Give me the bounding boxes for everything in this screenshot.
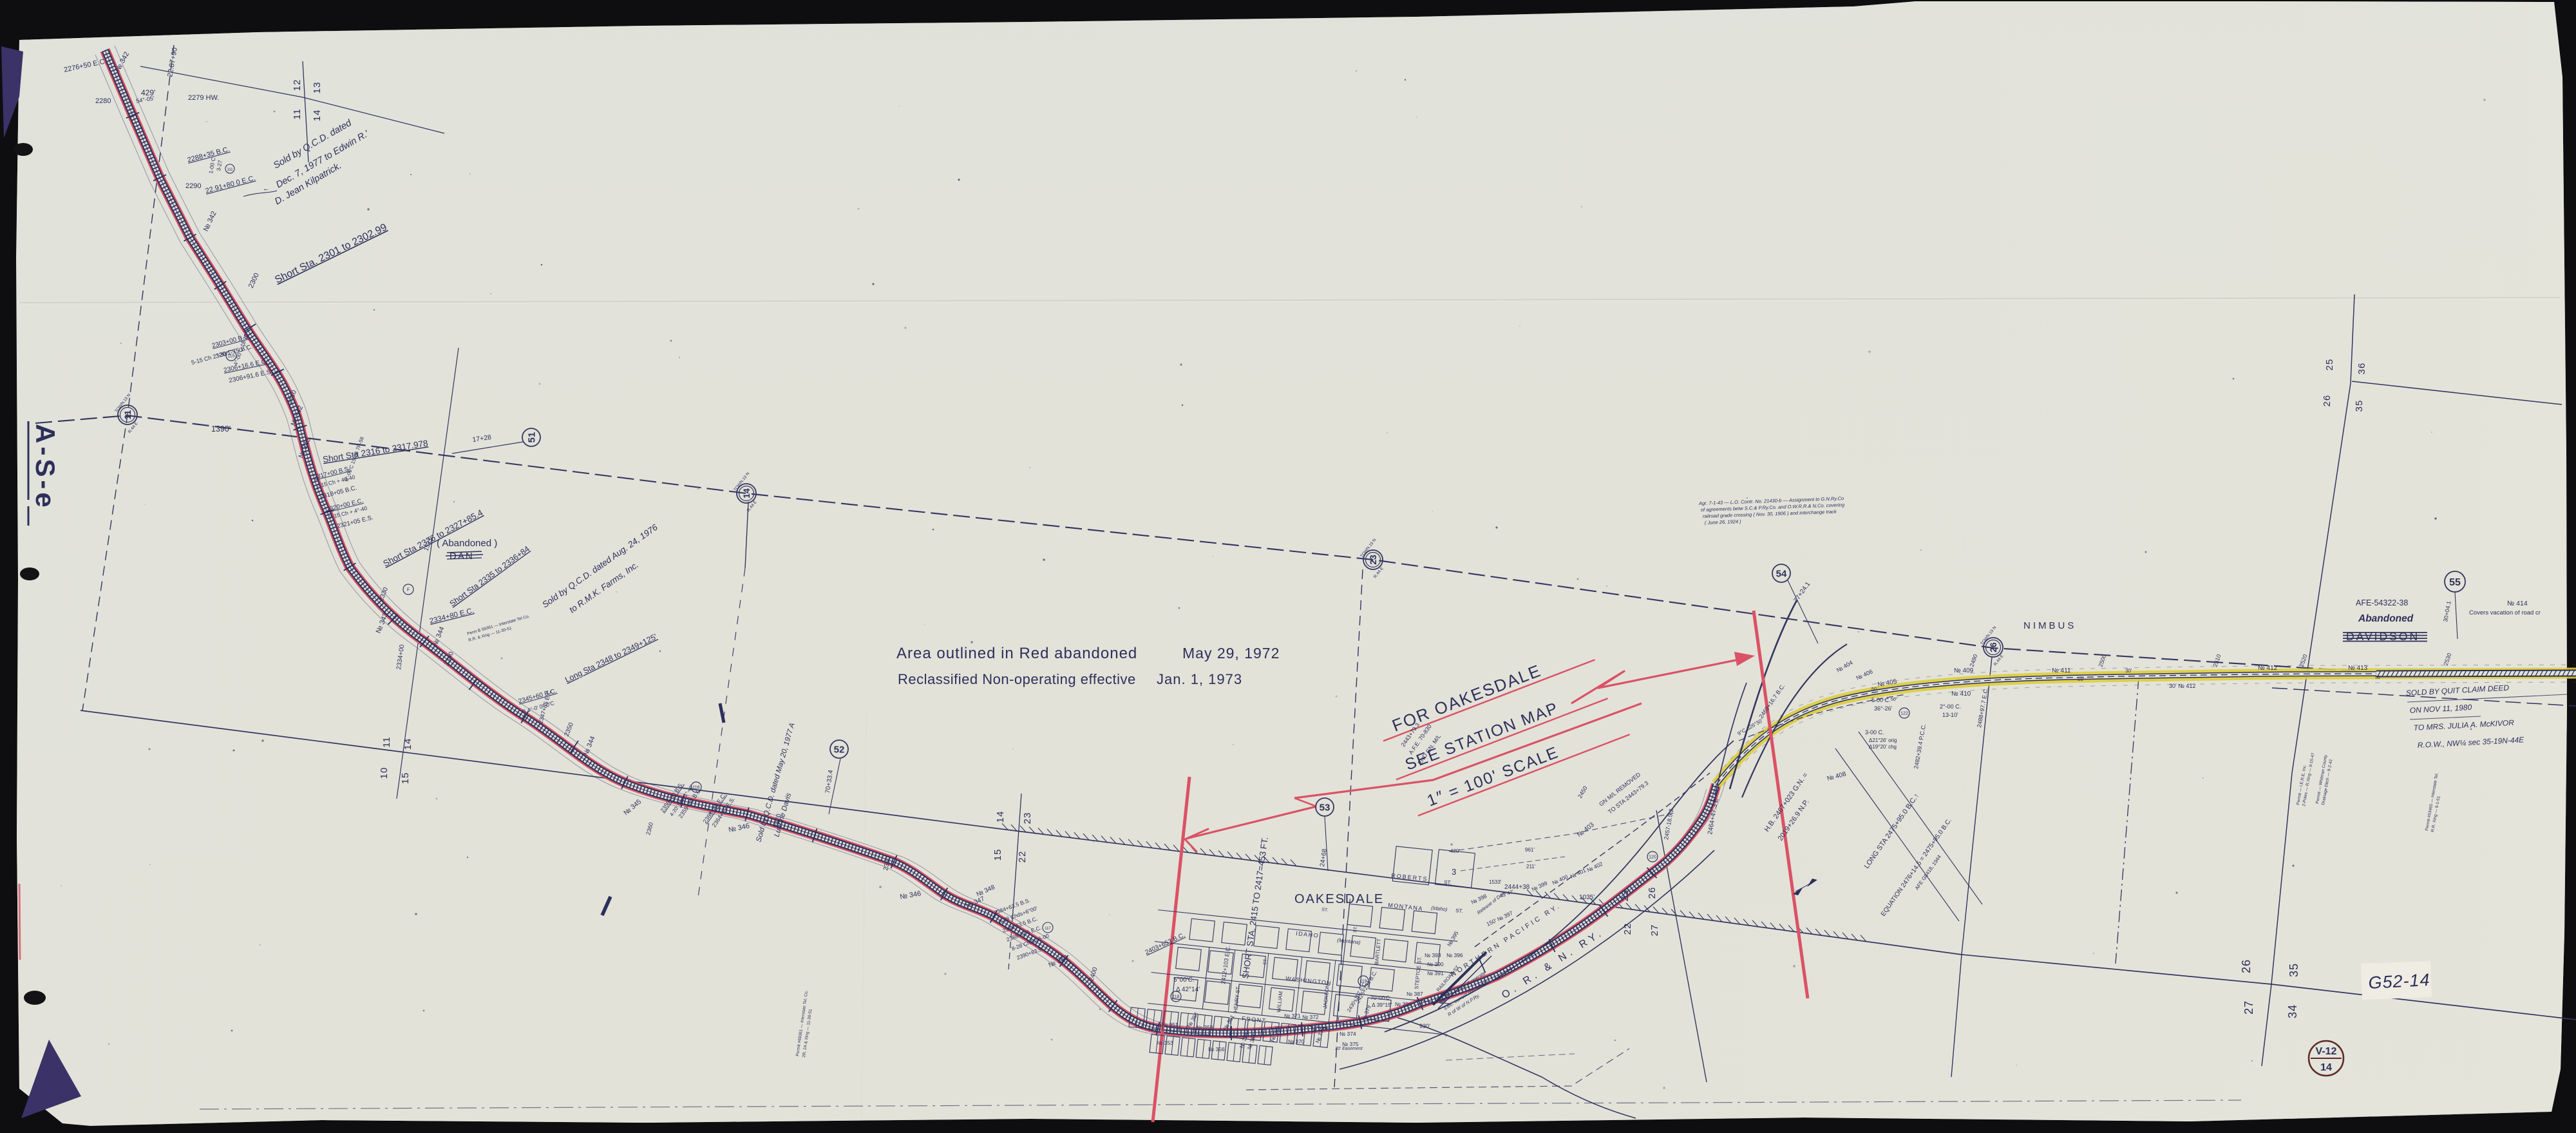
svg-text:55: 55 — [2449, 577, 2461, 588]
svg-text:2280: 2280 — [95, 97, 111, 105]
svg-text:Reclassified Non-operating eff: Reclassified Non-operating effective — [898, 671, 1136, 687]
svg-text:№ 358: № 358 — [1197, 1024, 1213, 1031]
svg-text:35: 35 — [2287, 963, 2300, 977]
svg-text:ST.: ST. — [1321, 908, 1329, 913]
svg-text:№ 353: № 353 — [1157, 1040, 1173, 1046]
svg-text:Area outlined in Red abandoned: Area outlined in Red abandoned — [896, 645, 1137, 662]
svg-text:36: 36 — [2356, 363, 2367, 375]
svg-text:Abandoned: Abandoned — [2358, 613, 2414, 624]
svg-text:122: 122 — [1900, 712, 1908, 716]
svg-text:26: 26 — [2240, 959, 2253, 973]
svg-text:30' № 412: 30' № 412 — [2169, 683, 2195, 689]
svg-text:1390': 1390' — [211, 424, 231, 433]
svg-text:52: 52 — [834, 744, 845, 755]
svg-text:23: 23 — [1620, 890, 1631, 902]
svg-text:26: 26 — [1647, 887, 1658, 899]
svg-text:←: ← — [263, 185, 270, 193]
svg-text:F: F — [407, 588, 410, 593]
svg-text:Δ21°26' orig: Δ21°26' orig — [1869, 738, 1897, 743]
svg-text:№ 396: № 396 — [1446, 952, 1463, 958]
svg-text:53: 53 — [1320, 802, 1331, 813]
svg-text:№ 393: № 393 — [1425, 952, 1441, 958]
svg-text:№ 351: № 351 — [1162, 1022, 1179, 1028]
svg-text:№ 356: № 356 — [1208, 1046, 1225, 1052]
svg-text:№ 411: № 411 — [2052, 667, 2071, 674]
svg-text:50': 50' — [2375, 676, 2381, 680]
svg-text:№ 387: № 387 — [1406, 991, 1423, 997]
svg-text:15: 15 — [400, 772, 411, 785]
svg-text:22: 22 — [1622, 923, 1633, 935]
svg-text:111: 111 — [227, 168, 233, 172]
svg-text:№ 370: № 370 — [1288, 1038, 1305, 1045]
svg-text:211': 211' — [1526, 864, 1536, 870]
svg-text:3: 3 — [1452, 867, 1456, 877]
svg-text:№ 374: № 374 — [1340, 1031, 1356, 1037]
svg-text:№ 372: № 372 — [1302, 1014, 1319, 1020]
svg-text:13: 13 — [312, 82, 323, 94]
svg-text:30' Easement: 30' Easement — [1335, 1047, 1363, 1051]
svg-text:36°-26': 36°-26' — [1874, 705, 1893, 712]
svg-text:35: 35 — [2354, 400, 2365, 412]
svg-text:AFE-54322-38: AFE-54322-38 — [2356, 598, 2408, 607]
svg-text:№ 409: № 409 — [1954, 667, 1974, 674]
svg-text:3-00 C.: 3-00 C. — [1865, 729, 1884, 736]
svg-text:13-10': 13-10' — [1942, 712, 1958, 718]
svg-text:ST.: ST. — [1263, 958, 1268, 965]
svg-text:A-S-e: A-S-e — [30, 424, 61, 511]
svg-text:Covers vacation of road cr: Covers vacation of road cr — [2469, 609, 2541, 616]
svg-text:14: 14 — [2320, 1062, 2332, 1073]
svg-text:ST.: ST. — [1353, 926, 1358, 933]
svg-text:ST.: ST. — [1455, 908, 1463, 914]
svg-text:117: 117 — [1045, 927, 1051, 931]
svg-text:23: 23 — [1022, 812, 1033, 824]
svg-text:50': 50' — [1891, 698, 1897, 702]
svg-text:G52-14: G52-14 — [2368, 970, 2431, 993]
svg-text:50': 50' — [2078, 676, 2085, 682]
svg-text:V-12: V-12 — [2316, 1046, 2337, 1057]
svg-text:120: 120 — [1649, 855, 1656, 860]
svg-text:( Abandoned ): ( Abandoned ) — [437, 538, 497, 549]
svg-text:11: 11 — [381, 736, 392, 748]
svg-text:1035': 1035' — [1579, 894, 1595, 901]
svg-text:27: 27 — [2242, 1000, 2255, 1014]
svg-text:420': 420' — [1450, 848, 1460, 854]
svg-text:27: 27 — [1649, 924, 1660, 937]
svg-text:15: 15 — [992, 849, 1003, 861]
svg-text:№ 412: № 412 — [2258, 665, 2278, 672]
svg-text:2°-00 C.: 2°-00 C. — [1940, 703, 1961, 710]
svg-text:№ 386: № 386 — [1395, 1001, 1412, 1007]
svg-text:25: 25 — [2324, 359, 2335, 371]
svg-text:№ 413: № 413 — [2348, 665, 2368, 672]
svg-text:Δ 39°15': Δ 39°15' — [1372, 1002, 1392, 1008]
svg-text:Δ19°20' chg: Δ19°20' chg — [1869, 744, 1897, 750]
svg-text:ST.: ST. — [1444, 879, 1452, 886]
svg-text:23: 23 — [1368, 555, 1378, 565]
svg-text:№ 391: № 391 — [1427, 970, 1444, 976]
svg-text:2290: 2290 — [185, 182, 201, 190]
svg-text:11: 11 — [122, 410, 133, 419]
svg-text:№ 414: № 414 — [2507, 600, 2528, 607]
svg-text:11: 11 — [292, 108, 303, 120]
svg-text:26: 26 — [2322, 395, 2333, 407]
svg-text:12: 12 — [292, 79, 303, 91]
svg-text:NIMBUS: NIMBUS — [2023, 620, 2076, 631]
svg-text:14: 14 — [995, 811, 1006, 823]
svg-text:54: 54 — [1776, 568, 1787, 579]
svg-text:OAKESDALE: OAKESDALE — [1294, 892, 1384, 906]
svg-text:14: 14 — [312, 109, 323, 122]
svg-text:Jan. 1, 1973: Jan. 1, 1973 — [1157, 671, 1242, 687]
svg-text:22: 22 — [1017, 851, 1028, 863]
svg-text:№ 371: № 371 — [1284, 1013, 1301, 1019]
svg-text:May 29, 1972: May 29, 1972 — [1182, 645, 1280, 662]
svg-text:30': 30' — [2125, 668, 2132, 674]
svg-text:10: 10 — [379, 767, 390, 779]
svg-text:№ 376: № 376 — [1311, 1025, 1328, 1032]
svg-text:2279 HW.: 2279 HW. — [188, 94, 219, 102]
svg-text:34: 34 — [2286, 1004, 2299, 1018]
svg-text:5-00 C.: 5-00 C. — [1871, 697, 1891, 703]
svg-text:1533': 1533' — [1489, 879, 1502, 885]
svg-text:930': 930' — [1419, 1023, 1430, 1029]
svg-text:26: 26 — [1988, 642, 1998, 652]
svg-text:№ 410: № 410 — [1951, 690, 1971, 698]
svg-text:961': 961' — [1525, 847, 1535, 853]
svg-text:14: 14 — [741, 488, 752, 499]
svg-text:51: 51 — [526, 432, 537, 443]
svg-text:№ 390: № 390 — [1427, 961, 1444, 967]
svg-text:50': 50' — [1871, 687, 1877, 692]
svg-text:14: 14 — [402, 738, 413, 750]
